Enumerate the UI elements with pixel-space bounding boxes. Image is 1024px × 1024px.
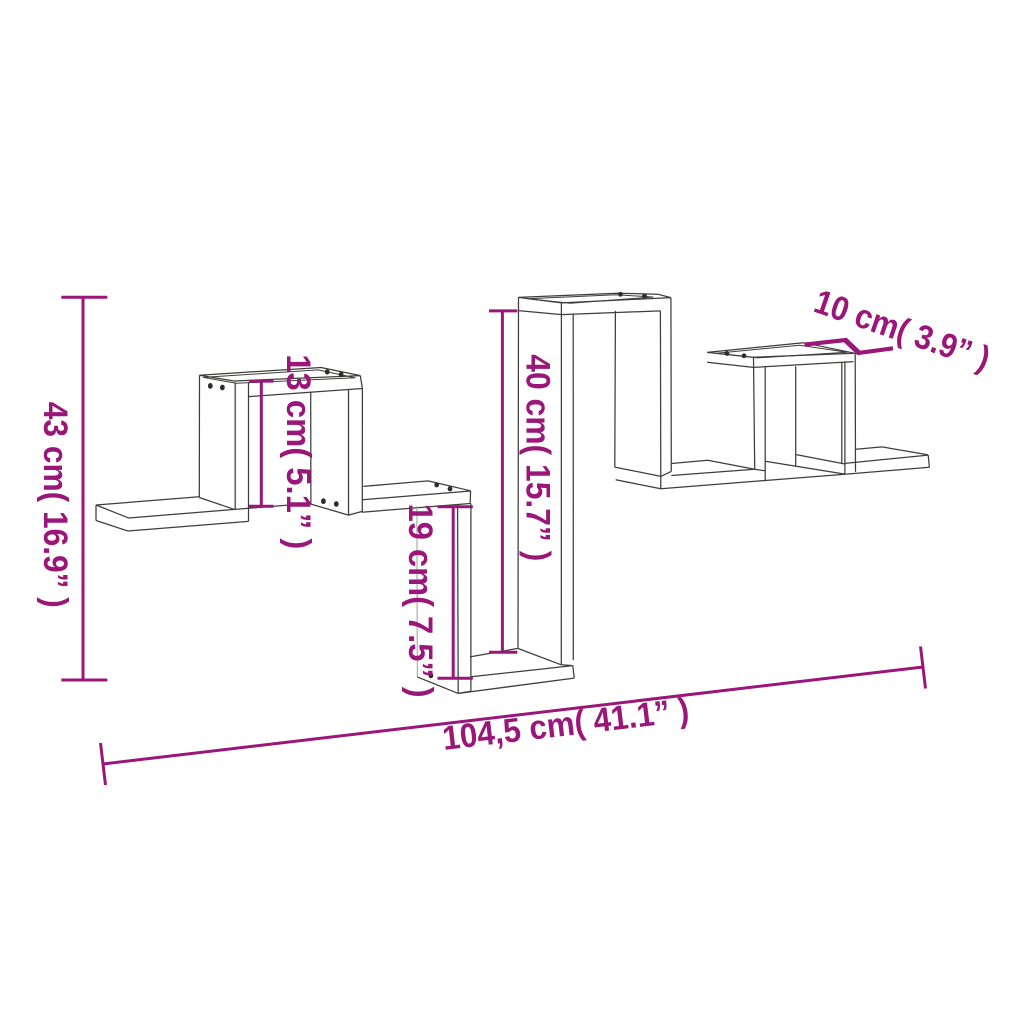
svg-text:13 cm( 5.1” ): 13 cm( 5.1” ): [279, 354, 317, 549]
svg-text:40 cm( 15.7” ): 40 cm( 15.7” ): [519, 354, 557, 561]
svg-text:19 cm( 7.5” ): 19 cm( 7.5” ): [401, 504, 439, 698]
svg-text:43 cm( 16.9” ): 43 cm( 16.9” ): [36, 402, 74, 608]
